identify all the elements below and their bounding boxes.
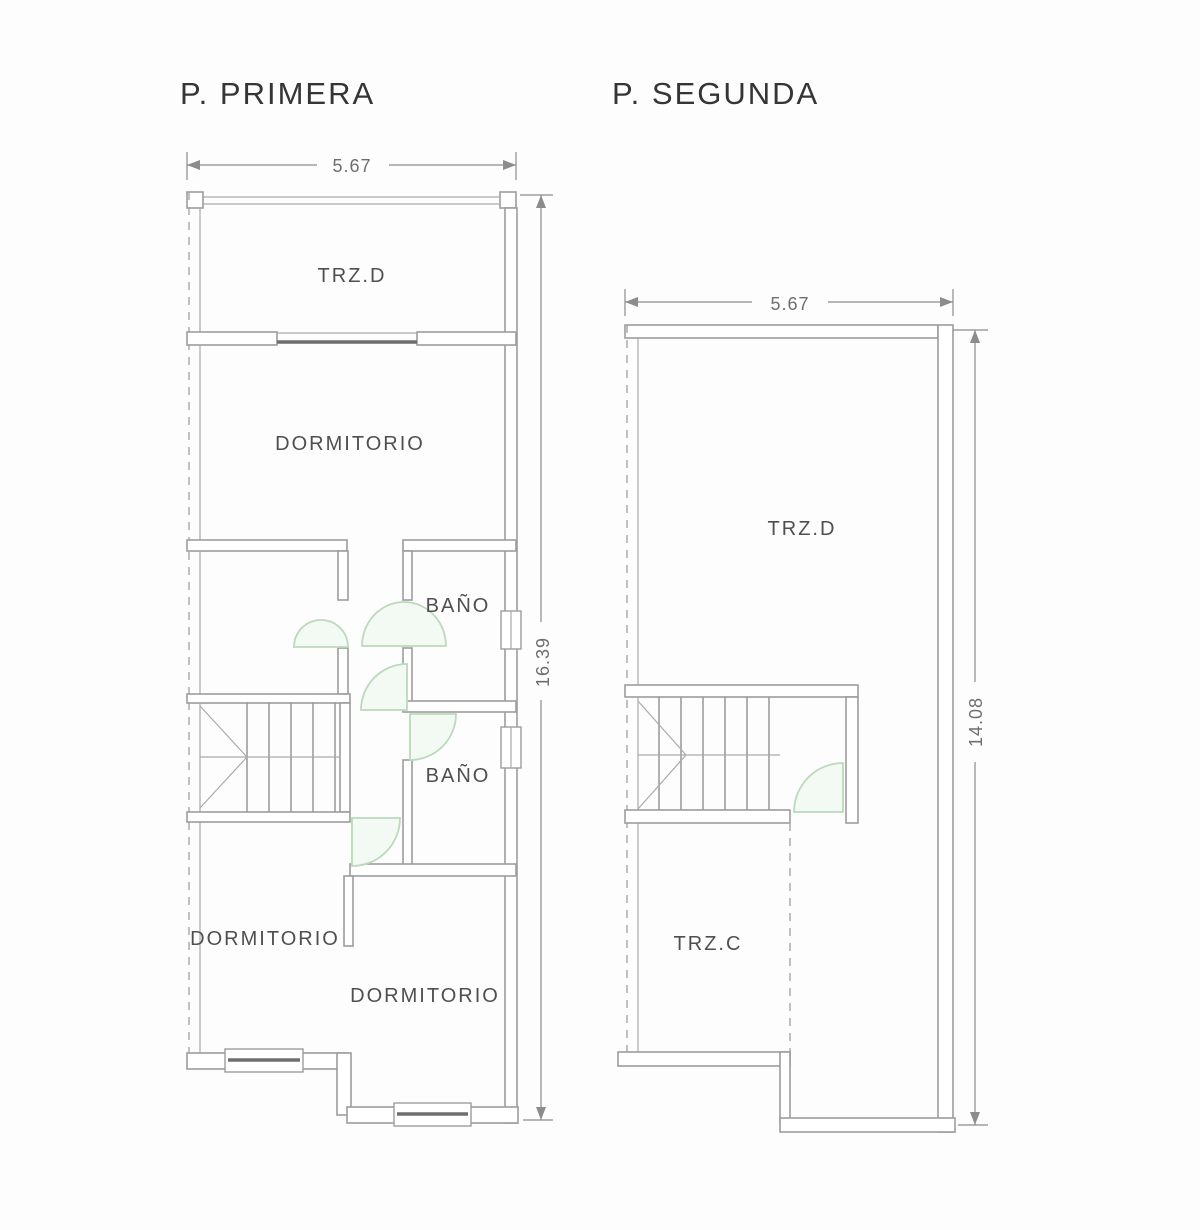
door-arc: [794, 763, 843, 812]
wall-segment: [625, 325, 938, 338]
dimension-arrow: [940, 297, 953, 307]
room-label-trzd-segunda: TRZ.D: [768, 518, 837, 540]
wall-segment: [846, 697, 858, 823]
room-label-dormitorio-bottom-left: DORMITORIO: [190, 928, 340, 950]
dimension-height-primera: 16.39: [520, 195, 553, 1120]
wall-segment: [403, 760, 412, 865]
corner-pillar: [500, 192, 516, 208]
dimension-height-label-segunda: 14.08: [966, 697, 986, 747]
wall-segment: [338, 551, 348, 600]
wall-segment: [780, 1052, 790, 1122]
wall-segment: [403, 540, 516, 551]
wall-segment: [618, 1052, 790, 1066]
primera-doors: [294, 602, 456, 866]
stair-diagonal: [638, 755, 686, 809]
floorplan-drawing: P. PRIMERA 5.67: [0, 0, 1200, 1230]
wall-segment: [337, 1053, 351, 1115]
dimension-arrow: [625, 297, 638, 307]
room-label-dormitorio-top: DORMITORIO: [275, 433, 425, 455]
wall-segment: [350, 864, 516, 876]
wall-segment: [938, 325, 953, 1132]
wall-segment: [338, 648, 348, 694]
dimension-arrow: [970, 330, 980, 343]
stair-diagonal: [200, 757, 247, 808]
wall-segment: [417, 332, 516, 345]
wall-segment: [187, 812, 350, 822]
wall-segment: [187, 694, 350, 703]
stair-diagonal: [638, 701, 686, 755]
plan-title-primera: P. PRIMERA: [180, 76, 375, 111]
door-arc: [352, 818, 400, 866]
door-arc: [410, 714, 456, 760]
wall-segment: [187, 540, 347, 551]
dimension-arrow: [503, 160, 516, 170]
room-label-trzc-segunda: TRZ.C: [674, 933, 743, 955]
door-arc: [361, 664, 407, 710]
segunda-outer-walls: [625, 325, 953, 1132]
dimension-height-label-primera: 16.39: [533, 637, 553, 687]
dimension-arrow: [536, 1107, 546, 1120]
segunda-interior-walls: [618, 685, 955, 1132]
wall-segment: [340, 703, 350, 812]
wall-segment: [625, 810, 790, 823]
wall-segment: [344, 876, 353, 946]
room-label-trzd-primera: TRZ.D: [318, 265, 387, 287]
plan-segunda: P. SEGUNDA 5.67: [612, 76, 988, 1132]
plan-primera: P. PRIMERA 5.67: [180, 76, 553, 1126]
wall-segment: [403, 551, 412, 600]
dimension-width-label-segunda: 5.67: [770, 294, 809, 314]
dimension-arrow: [536, 195, 546, 208]
wall-segment: [625, 685, 858, 697]
dimension-height-segunda: 14.08: [953, 330, 988, 1125]
room-label-bano-lower: BAÑO: [426, 763, 491, 787]
room-label-bano-upper: BAÑO: [426, 593, 491, 617]
stairs-segunda: [638, 697, 780, 810]
plan-title-segunda: P. SEGUNDA: [612, 76, 819, 111]
stairs-primera: [200, 702, 340, 812]
room-label-dormitorio-bottom-right: DORMITORIO: [350, 985, 500, 1007]
dimension-width-label-primera: 5.67: [332, 156, 371, 176]
wall-segment: [780, 1118, 955, 1132]
stair-diagonal: [200, 706, 247, 757]
dimension-arrow: [187, 160, 200, 170]
dimension-arrow: [970, 1112, 980, 1125]
wall-segment: [403, 701, 516, 712]
door-arc: [294, 620, 348, 647]
dimension-width-segunda: 5.67: [625, 289, 953, 316]
wall-segment: [187, 332, 277, 345]
floorplan-canvas: P. PRIMERA 5.67: [0, 0, 1200, 1230]
dimension-width-primera: 5.67: [187, 152, 516, 180]
